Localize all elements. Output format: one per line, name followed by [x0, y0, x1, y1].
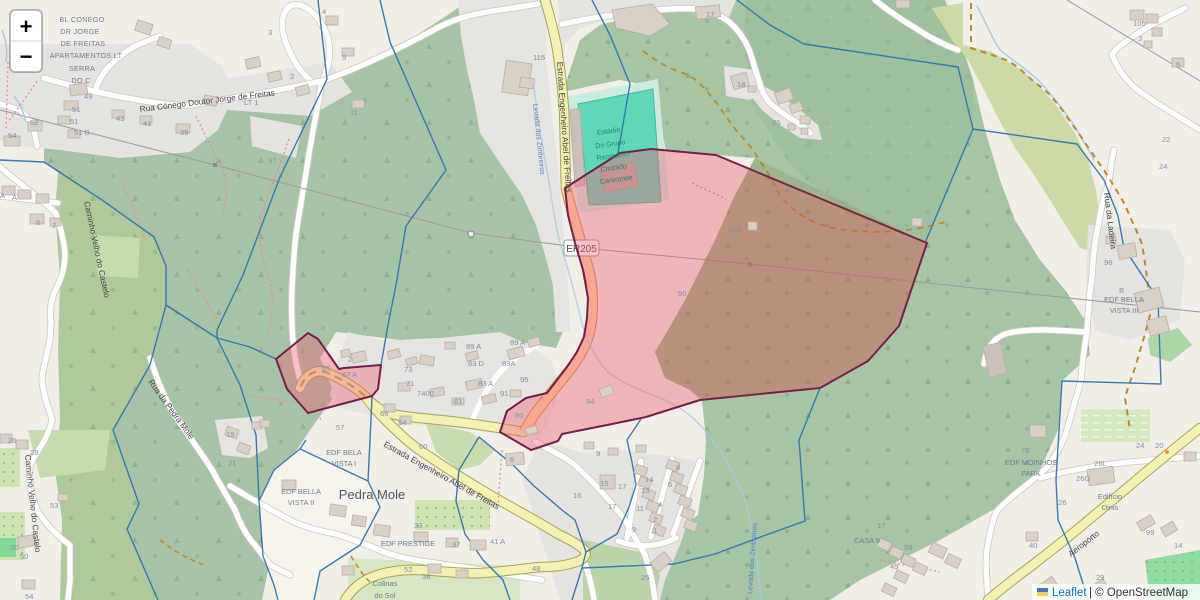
svg-text:19: 19: [226, 430, 234, 439]
svg-text:54: 54: [25, 592, 33, 600]
svg-text:13: 13: [641, 486, 649, 495]
svg-text:1: 1: [653, 526, 657, 535]
svg-text:4: 4: [322, 7, 326, 16]
svg-text:11: 11: [636, 504, 644, 513]
svg-text:BL CONEGO: BL CONEGO: [59, 15, 104, 24]
svg-text:SERRA: SERRA: [69, 64, 95, 73]
svg-text:38: 38: [422, 572, 430, 581]
svg-text:16: 16: [573, 491, 581, 500]
svg-text:33: 33: [414, 521, 422, 530]
svg-text:22: 22: [1162, 135, 1170, 144]
svg-text:78: 78: [1021, 446, 1029, 455]
svg-text:J: J: [52, 221, 56, 230]
svg-text:2: 2: [653, 515, 657, 524]
svg-text:59: 59: [904, 543, 912, 552]
svg-text:91: 91: [500, 389, 508, 398]
svg-text:17: 17: [608, 502, 616, 511]
svg-text:VISTA I: VISTA I: [332, 459, 357, 468]
svg-text:51 B: 51 B: [74, 128, 90, 137]
svg-text:15: 15: [600, 479, 608, 488]
svg-text:83 A: 83 A: [478, 379, 494, 388]
svg-text:24: 24: [1136, 441, 1144, 450]
svg-text:20: 20: [1155, 441, 1163, 450]
svg-text:25: 25: [641, 573, 649, 582]
svg-text:48: 48: [532, 564, 540, 573]
svg-text:51: 51: [70, 117, 78, 126]
svg-text:APARTAMENTOS LT: APARTAMENTOS LT: [50, 51, 123, 60]
svg-text:25: 25: [772, 118, 780, 127]
svg-text:Pedra Mole: Pedra Mole: [339, 487, 405, 502]
svg-text:51: 51: [72, 105, 80, 114]
svg-text:3: 3: [1138, 34, 1142, 43]
svg-text:17: 17: [706, 10, 714, 19]
svg-text:14: 14: [645, 475, 653, 484]
svg-text:Dinis: Dinis: [1102, 503, 1119, 512]
svg-text:96: 96: [1104, 258, 1112, 267]
svg-text:66: 66: [380, 409, 388, 418]
svg-text:EDF PRESTIGE: EDF PRESTIGE: [381, 539, 435, 548]
svg-text:CASA 9: CASA 9: [854, 536, 880, 545]
svg-text:60: 60: [419, 442, 427, 451]
svg-text:43: 43: [116, 114, 124, 123]
svg-text:57: 57: [336, 423, 344, 432]
svg-text:9: 9: [632, 525, 636, 534]
svg-text:89A: 89A: [502, 359, 516, 368]
svg-text:EDF MOINHOS: EDF MOINHOS: [1005, 458, 1057, 467]
svg-text:26L: 26L: [1094, 459, 1107, 468]
svg-text:2: 2: [348, 355, 352, 364]
svg-text:73: 73: [404, 365, 412, 374]
svg-text:64: 64: [398, 418, 406, 427]
svg-text:14: 14: [1174, 541, 1182, 550]
svg-text:EDF BELLA: EDF BELLA: [281, 487, 321, 496]
svg-text:Edifício: Edifício: [1098, 492, 1122, 501]
svg-text:71: 71: [406, 379, 414, 388]
svg-text:4: 4: [658, 500, 662, 509]
svg-text:6: 6: [668, 480, 672, 489]
svg-text:do Sol: do Sol: [375, 591, 396, 600]
svg-text:7400: 7400: [417, 389, 434, 398]
svg-text:−: −: [20, 44, 33, 69]
svg-text:95: 95: [520, 375, 528, 384]
svg-text:+: +: [20, 14, 33, 39]
svg-text:Colinas: Colinas: [373, 579, 398, 588]
svg-text:6: 6: [510, 455, 514, 464]
svg-text:65: 65: [322, 364, 330, 373]
svg-text:80: 80: [515, 411, 523, 420]
svg-text:9: 9: [342, 53, 346, 62]
svg-text:26: 26: [1058, 498, 1066, 507]
svg-text:52: 52: [30, 118, 38, 127]
svg-text:29: 29: [1096, 573, 1104, 582]
svg-text:41: 41: [143, 119, 151, 128]
svg-text:81: 81: [454, 397, 462, 406]
svg-text:105: 105: [1133, 19, 1146, 28]
svg-text:24: 24: [1159, 162, 1167, 171]
svg-text:14: 14: [737, 80, 745, 89]
svg-text:EDF BELLA: EDF BELLA: [1104, 295, 1144, 304]
svg-text:115: 115: [533, 53, 545, 62]
svg-text:6: 6: [1176, 60, 1180, 69]
svg-text:41 A: 41 A: [490, 537, 506, 546]
svg-text:103: 103: [728, 225, 741, 234]
svg-text:53: 53: [50, 501, 58, 510]
svg-text:17: 17: [618, 482, 626, 491]
svg-text:67 A: 67 A: [342, 370, 358, 379]
svg-text:EDF BELA: EDF BELA: [326, 448, 362, 457]
svg-text:39: 39: [180, 128, 188, 137]
svg-text:20: 20: [10, 543, 18, 552]
svg-text:84: 84: [586, 397, 594, 406]
svg-text:40: 40: [1029, 541, 1037, 550]
svg-text:90: 90: [678, 289, 686, 298]
svg-text:DR JORGE: DR JORGE: [60, 27, 100, 36]
svg-text:37: 37: [268, 156, 276, 165]
svg-text:49: 49: [84, 92, 92, 101]
svg-text:89 A: 89 A: [466, 342, 482, 351]
svg-text:2: 2: [290, 72, 294, 81]
svg-text:89 A: 89 A: [510, 338, 526, 347]
svg-text:54: 54: [8, 131, 16, 140]
svg-text:VISTA II: VISTA II: [288, 498, 315, 507]
svg-text:8: 8: [676, 463, 680, 472]
svg-text:17: 17: [877, 521, 885, 530]
svg-text:8: 8: [36, 218, 40, 227]
svg-text:PARK: PARK: [1021, 469, 1041, 478]
svg-text:50: 50: [20, 552, 28, 561]
svg-text:83 D: 83 D: [468, 359, 485, 368]
svg-text:37: 37: [452, 540, 460, 549]
svg-text:21: 21: [228, 459, 236, 468]
svg-text:Leaflet: Leaflet: [1052, 587, 1087, 599]
svg-text:11: 11: [350, 108, 358, 117]
svg-text:49: 49: [890, 562, 898, 571]
svg-text:DE FREITAS: DE FREITAS: [61, 39, 106, 48]
svg-text:DO C: DO C: [71, 76, 90, 85]
svg-text:VISTA III: VISTA III: [1110, 306, 1139, 315]
svg-text:| © OpenStreetMap: | © OpenStreetMap: [1089, 587, 1188, 599]
svg-text:99: 99: [1146, 528, 1154, 537]
svg-text:9: 9: [596, 449, 600, 458]
svg-text:52: 52: [404, 565, 412, 574]
svg-text:26: 26: [8, 436, 16, 445]
svg-text:26G: 26G: [1076, 474, 1090, 483]
svg-text:B: B: [1119, 286, 1124, 295]
svg-text:3: 3: [268, 28, 272, 37]
